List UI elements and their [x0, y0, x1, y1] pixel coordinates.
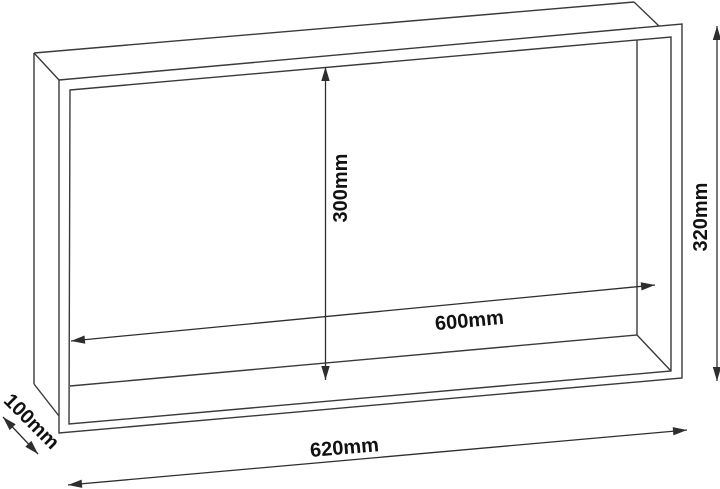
dimension-outer-width: 620mm [68, 427, 687, 488]
inner-width-dim-line [71, 285, 655, 341]
arrow-left-icon [71, 336, 85, 344]
front-inner-opening [69, 37, 671, 424]
arrow-right-icon [641, 282, 655, 290]
front-outer-frame [59, 24, 682, 433]
arrow-down-icon [713, 367, 720, 381]
niche-technical-drawing: 300mm 600mm 320mm 620mm 100m [0, 0, 720, 489]
outer-height-label: 320mm [690, 183, 712, 252]
bottom-right-inner-depth-edge [637, 335, 671, 371]
arrow-up-icon [321, 67, 329, 81]
dimension-inner-width: 600mm [71, 282, 655, 344]
top-right-depth-edge [634, 2, 659, 26]
dimension-outer-height: 320mm [690, 26, 720, 381]
diagram-canvas: 300mm 600mm 320mm 620mm 100m [0, 0, 720, 489]
box-outline [34, 2, 682, 433]
inner-height-label: 300mm [330, 154, 352, 223]
bottom-left-depth-edge [34, 384, 59, 416]
inner-width-label: 600mm [434, 307, 505, 335]
dimension-inner-height: 300mm [321, 67, 352, 380]
arrow-down-icon [321, 366, 329, 380]
arrow-right-icon [673, 427, 687, 435]
arrow-left-icon [68, 480, 82, 488]
top-left-depth-edge [34, 53, 59, 80]
back-top-edge [34, 2, 634, 53]
back-panel-edges [70, 40, 637, 386]
dimension-depth: 100mm [0, 390, 63, 454]
arrow-up-icon [713, 26, 720, 40]
